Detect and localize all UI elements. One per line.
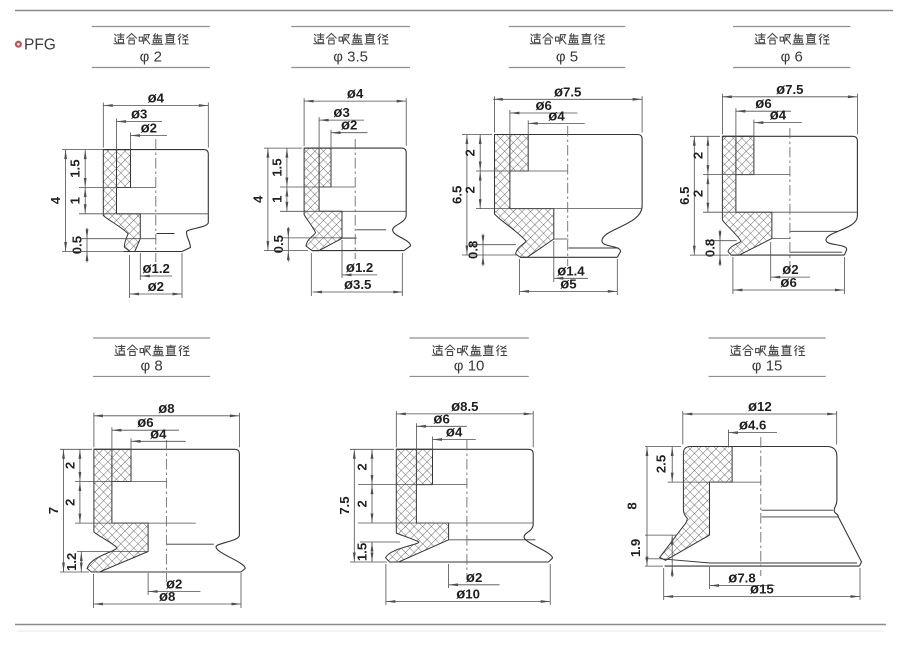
- svg-text:2: 2: [690, 152, 705, 159]
- svg-text:PFG: PFG: [24, 37, 56, 54]
- svg-text:ø7.5: ø7.5: [554, 84, 581, 100]
- svg-text:ø12: ø12: [748, 399, 772, 415]
- svg-text:ø15: ø15: [750, 582, 774, 598]
- svg-text:2: 2: [355, 463, 370, 470]
- svg-text:φ 3.5: φ 3.5: [333, 49, 368, 66]
- svg-text:φ 15: φ 15: [752, 357, 783, 374]
- svg-text:7: 7: [46, 507, 61, 514]
- svg-text:0.8: 0.8: [703, 239, 718, 257]
- svg-text:1.9: 1.9: [628, 539, 643, 557]
- svg-text:ø2: ø2: [341, 118, 357, 134]
- svg-text:2: 2: [355, 500, 370, 507]
- svg-text:ø2: ø2: [141, 121, 157, 137]
- svg-text:ø4: ø4: [548, 108, 565, 124]
- svg-text:φ 5: φ 5: [556, 49, 578, 66]
- svg-text:8: 8: [625, 502, 640, 509]
- svg-text:1.2: 1.2: [64, 553, 79, 571]
- svg-text:ø4: ø4: [446, 425, 463, 441]
- svg-text:ø3.5: ø3.5: [344, 277, 371, 293]
- svg-text:ø6: ø6: [780, 275, 796, 291]
- svg-text:2: 2: [463, 149, 478, 156]
- svg-text:4: 4: [48, 196, 63, 204]
- svg-text:ø2: ø2: [148, 279, 164, 295]
- svg-text:ø8: ø8: [158, 401, 174, 417]
- svg-text:ø1.2: ø1.2: [346, 260, 373, 276]
- svg-text:ø4: ø4: [770, 108, 787, 124]
- svg-text:1.5: 1.5: [269, 158, 284, 176]
- svg-text:φ 2: φ 2: [140, 49, 162, 66]
- svg-text:φ 6: φ 6: [781, 49, 803, 66]
- svg-text:1: 1: [269, 196, 284, 203]
- svg-text:2: 2: [62, 462, 77, 469]
- svg-text:ø4: ø4: [148, 91, 165, 107]
- svg-text:ø4: ø4: [347, 86, 364, 102]
- svg-text:ø7.5: ø7.5: [776, 82, 803, 98]
- svg-text:2: 2: [463, 186, 478, 193]
- svg-text:ø4.6: ø4.6: [739, 418, 766, 434]
- svg-text:ø8.5: ø8.5: [451, 399, 478, 415]
- svg-text:ø8: ø8: [159, 589, 175, 605]
- svg-text:7.5: 7.5: [337, 496, 352, 514]
- svg-text:2: 2: [690, 190, 705, 197]
- svg-text:φ 8: φ 8: [140, 357, 162, 374]
- svg-text:φ 10: φ 10: [454, 357, 485, 374]
- svg-text:0.8: 0.8: [466, 241, 481, 259]
- svg-text:ø1.2: ø1.2: [143, 261, 170, 277]
- svg-text:1.5: 1.5: [355, 543, 370, 561]
- svg-text:ø10: ø10: [456, 587, 480, 603]
- svg-text:1.5: 1.5: [68, 159, 83, 177]
- svg-text:2: 2: [62, 499, 77, 506]
- svg-text:ø4: ø4: [150, 426, 167, 442]
- svg-text:2.5: 2.5: [654, 455, 669, 473]
- svg-text:4: 4: [250, 195, 265, 203]
- svg-text:ø5: ø5: [560, 276, 576, 292]
- svg-text:1: 1: [68, 197, 83, 204]
- svg-text:ø2: ø2: [466, 570, 482, 586]
